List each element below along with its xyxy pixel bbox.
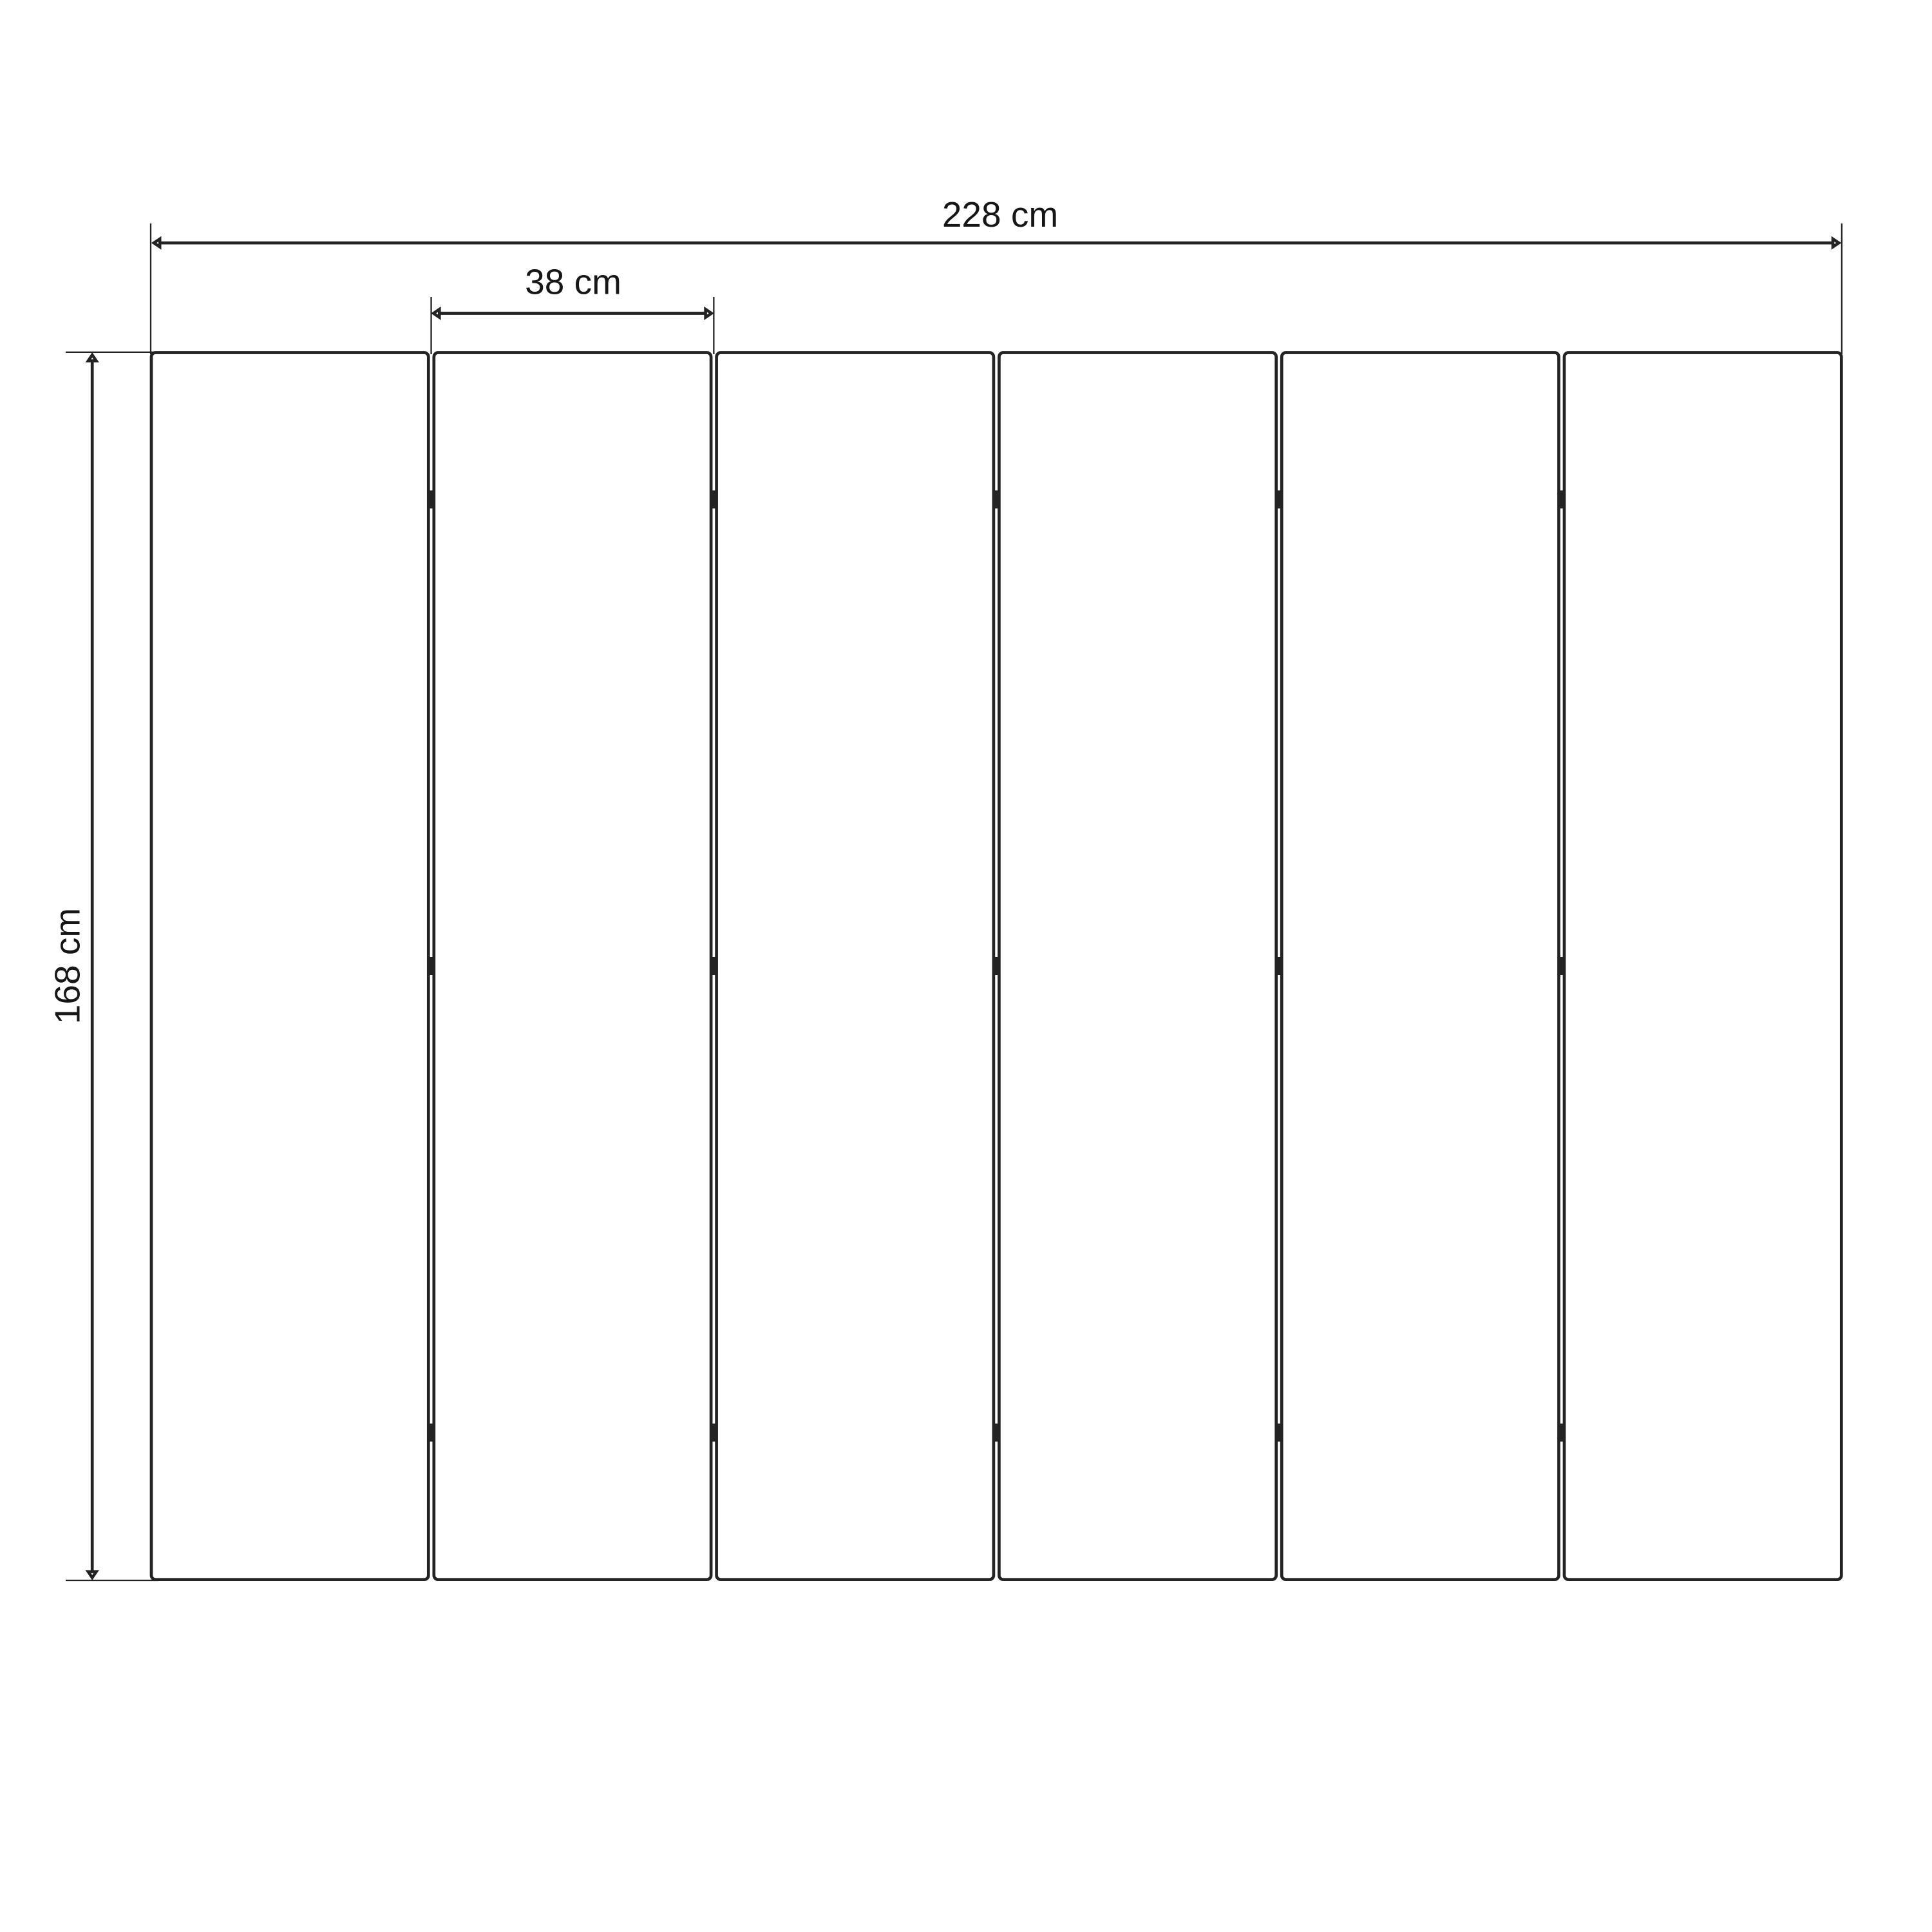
svg-text:228 cm: 228 cm <box>942 194 1058 234</box>
svg-text:168 cm: 168 cm <box>48 908 88 1024</box>
svg-text:38 cm: 38 cm <box>525 262 621 302</box>
